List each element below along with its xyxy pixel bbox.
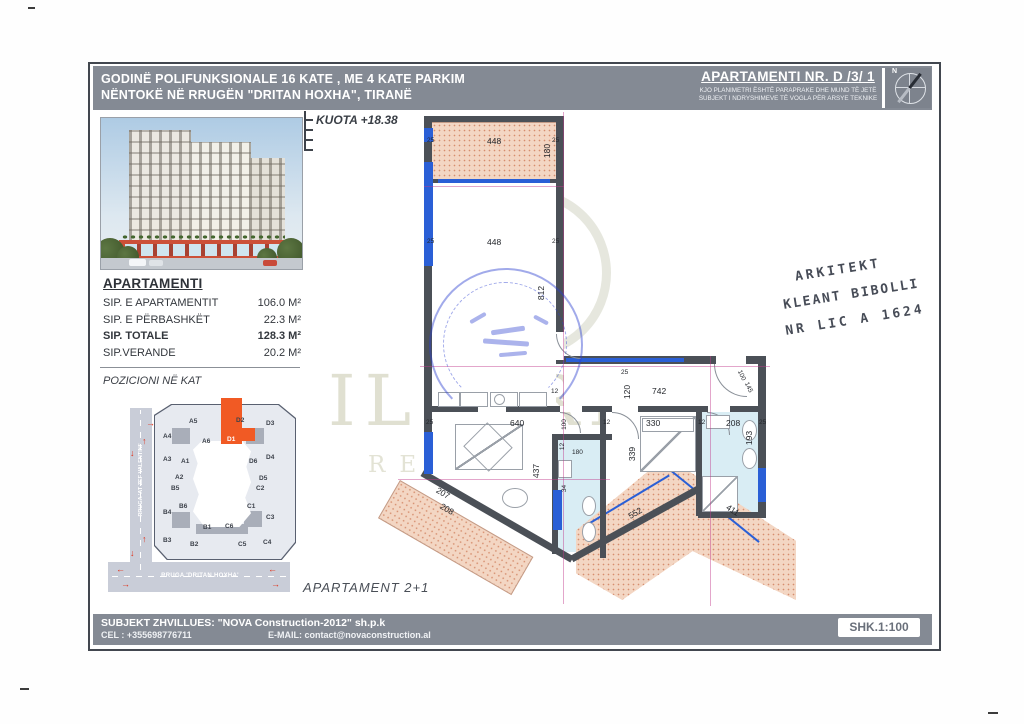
scan-mark (20, 688, 29, 690)
round-blue-stamp (429, 268, 585, 418)
scale-badge: SHK.1:100 (838, 618, 920, 637)
area-row-label: SIP.VERANDE (103, 345, 176, 362)
panel-heading: APARTAMENTI (103, 276, 203, 291)
developer-label: SUBJEKT ZHVILLUES: "NOVA Construction-20… (101, 617, 385, 629)
dimension-label: 208 (726, 418, 740, 428)
keyplan-unit-label: B2 (190, 541, 198, 548)
compass-north-label: N (892, 68, 897, 75)
keyplan-unit-label: D3 (266, 420, 274, 427)
window (758, 468, 766, 502)
area-row-value: 22.3 M² (264, 312, 301, 329)
car (263, 260, 277, 266)
area-table-row: SIP. TOTALE128.3 M² (103, 328, 301, 345)
area-row-value: 128.3 M² (258, 328, 301, 345)
traffic-arrow-icon: ↑ (142, 534, 147, 544)
keyplan-unit-label: A3 (163, 456, 171, 463)
keyplan-unit-label: D4 (266, 454, 274, 461)
keyplan-unit-label: B6 (179, 503, 187, 510)
area-table: SIP. E APARTAMENTIT106.0 M²SIP. E PËRBAS… (103, 295, 301, 361)
window (424, 432, 433, 474)
keyplan-unit-label: C3 (266, 514, 274, 521)
car (149, 260, 163, 266)
apartment-header: APARTAMENTI NR. D /3/ 1 KJO PLANIMETRI Ë… (698, 69, 878, 103)
level-label: KUOTA +18.38 (316, 113, 398, 127)
keyplan-core (172, 512, 190, 528)
car (129, 259, 146, 266)
area-table-row: SIP. E PËRBASHKËT22.3 M² (103, 312, 301, 329)
apartment-number: APARTAMENTI NR. D /3/ 1 (698, 69, 878, 84)
keyplan-unit-label: D5 (259, 475, 267, 482)
compass-icon: N (882, 68, 931, 108)
dimension-label: 437 (531, 464, 541, 478)
washbasin (558, 460, 572, 478)
tower-block (249, 158, 285, 242)
dimension-label: 25 (621, 369, 628, 376)
dimension-label: 100 (561, 419, 568, 430)
keyplan-courtyard (193, 441, 251, 527)
keyplan-unit-label: B1 (203, 524, 211, 531)
scanned-plan-sheet: GODINË POLIFUNKSIONALE 16 KATE , ME 4 KA… (0, 0, 1024, 724)
toilet (582, 496, 596, 516)
keyplan-unit-label: B5 (171, 485, 179, 492)
window (438, 179, 550, 183)
dimension-label: 12 (698, 419, 705, 426)
area-row-label: SIP. E APARTAMENTIT (103, 295, 218, 312)
dimension-label: 180 (572, 449, 583, 456)
traffic-arrow-icon: → (121, 579, 130, 589)
project-title-line2: NËNTOKË NË RRUGËN "DRITAN HOXHA", TIRANË (101, 87, 465, 103)
dimension-label: 120 (622, 385, 632, 399)
window (424, 162, 433, 266)
project-title-line1: GODINË POLIFUNKSIONALE 16 KATE , ME 4 KA… (101, 71, 465, 87)
tower-block (189, 142, 251, 242)
guide-line (710, 356, 711, 606)
area-row-label: SIP. TOTALE (103, 328, 168, 345)
top-terrace (431, 122, 558, 181)
email-label: E-MAIL: contact@novaconstruction.al (268, 630, 431, 640)
tower-block (129, 130, 191, 242)
dimension-label: 742 (652, 386, 666, 396)
keyplan-unit-label: C2 (256, 485, 264, 492)
dimension-label: 180 (542, 144, 552, 158)
traffic-arrow-icon: → (146, 418, 155, 428)
position-heading: POZICIONI NË KAT (103, 375, 201, 387)
keyplan-unit-label: D1 (227, 436, 235, 443)
level-marker-icon (304, 111, 313, 151)
dimension-label: 448 (487, 237, 501, 247)
window (553, 490, 562, 530)
keyplan-unit-label: B3 (163, 537, 171, 544)
keyplan-unit-label: C5 (238, 541, 246, 548)
building-render-image (100, 117, 303, 270)
keyplan-unit-label: C4 (263, 539, 271, 546)
keyplan-core (172, 428, 190, 444)
traffic-arrow-icon: → (271, 579, 280, 589)
keyplan-unit-label: A2 (175, 474, 183, 481)
street-label-left: RRUGA 'AT ZEF VALENTINI' (138, 435, 144, 525)
divider (100, 367, 300, 368)
keyplan-unit-label: C6 (225, 523, 233, 530)
keyplan-unit-label: B4 (163, 509, 171, 516)
dimension-label: 25 (426, 419, 433, 426)
keyplan-unit-label: A6 (202, 438, 210, 445)
guide-line (398, 479, 610, 480)
area-row-label: SIP. E PËRBASHKËT (103, 312, 210, 329)
area-table-row: SIP.VERANDE20.2 M² (103, 345, 301, 362)
footer-bar: SUBJEKT ZHVILLUES: "NOVA Construction-20… (93, 614, 932, 645)
phone-label: CEL : +355698776711 (101, 630, 192, 640)
area-table-row: SIP. E APARTAMENTIT106.0 M² (103, 295, 301, 312)
dimension-label: 12 (603, 419, 610, 426)
keyplan-unit-label: A5 (189, 418, 197, 425)
armchair (502, 488, 528, 508)
wall (424, 116, 564, 122)
dimension-label: 330 (646, 418, 660, 428)
area-row-value: 20.2 M² (264, 345, 301, 362)
dimension-label: 448 (487, 136, 501, 146)
keyplan-unit-label: A4 (163, 433, 171, 440)
bidet (582, 522, 596, 542)
dimension-label: 25 (427, 238, 434, 245)
street-label-bottom: RRUGA 'DRITAN HOXHA' (130, 573, 270, 579)
guide-line (424, 186, 564, 187)
keyplan-unit-label: D6 (249, 458, 257, 465)
dimension-label: 12 (559, 443, 566, 450)
project-title: GODINË POLIFUNKSIONALE 16 KATE , ME 4 KA… (101, 71, 465, 103)
dimension-label: 34 (561, 485, 568, 492)
keyplan-unit-label: D2 (236, 417, 244, 424)
traffic-arrow-icon: ← (116, 564, 125, 574)
dimension-label: 25 (552, 238, 559, 245)
area-row-value: 106.0 M² (258, 295, 301, 312)
dimension-label: 193 (744, 431, 754, 445)
architect-stamp-line1: ARKITEKT (794, 256, 882, 284)
dimension-label: 25 (427, 137, 434, 144)
bidet (742, 448, 757, 469)
dimension-label: 25 (552, 137, 559, 144)
dimension-label: 339 (627, 447, 637, 461)
dimension-label: 25 (759, 419, 766, 426)
scan-mark (988, 712, 998, 714)
keyplan-unit-label: A1 (181, 458, 189, 465)
keyplan-unit-label: C1 (247, 503, 255, 510)
header-bar: GODINË POLIFUNKSIONALE 16 KATE , ME 4 KA… (93, 66, 932, 110)
scan-mark (28, 7, 35, 9)
traffic-arrow-icon: ↓ (130, 448, 135, 458)
traffic-arrow-icon: ↓ (130, 548, 135, 558)
disclaimer: KJO PLANIMETRI ËSHTË PARAPRAKE DHE MUND … (698, 87, 878, 103)
apartment-type-label: APARTAMENT 2+1 (303, 580, 429, 595)
